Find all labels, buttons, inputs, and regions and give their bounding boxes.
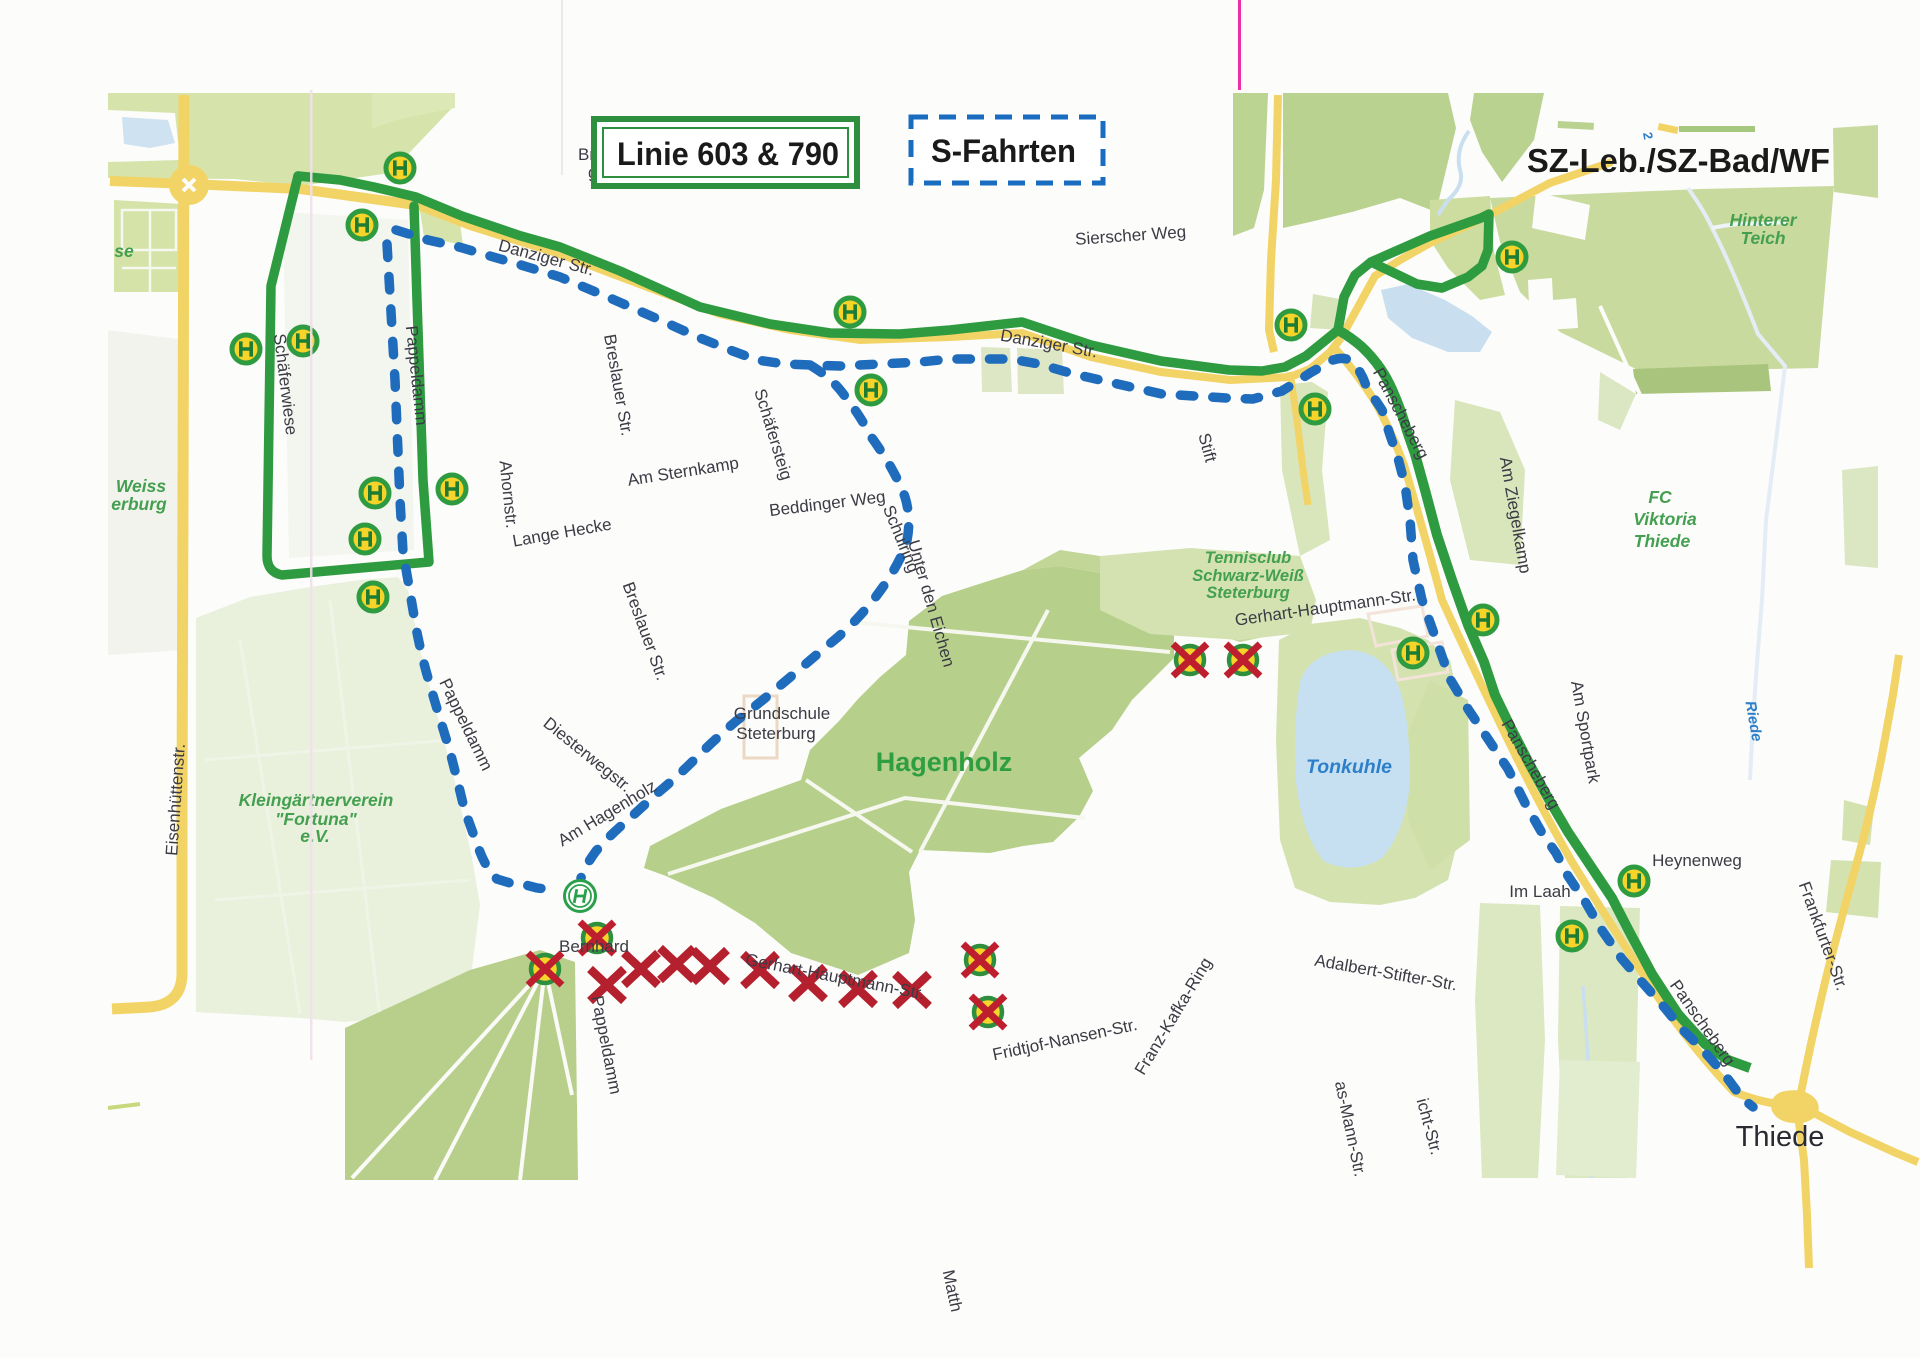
svg-text:FC: FC xyxy=(1648,487,1672,507)
svg-text:Grundschule: Grundschule xyxy=(734,704,830,723)
svg-text:Steterburg: Steterburg xyxy=(736,724,815,743)
svg-text:Im Laah: Im Laah xyxy=(1509,882,1570,901)
svg-text:Thiede: Thiede xyxy=(1634,531,1691,551)
svg-text:Linie 603 & 790: Linie 603 & 790 xyxy=(617,136,839,172)
svg-text:Bernhard: Bernhard xyxy=(559,937,629,956)
svg-text:erburg: erburg xyxy=(111,494,167,514)
svg-text:SZ-Leb./SZ-Bad/WF: SZ-Leb./SZ-Bad/WF xyxy=(1527,142,1830,179)
svg-text:Hagenholz: Hagenholz xyxy=(876,747,1013,777)
svg-text:Weiss: Weiss xyxy=(116,476,167,496)
svg-text:Teich: Teich xyxy=(1740,228,1785,248)
svg-text:Thiede: Thiede xyxy=(1736,1121,1825,1153)
svg-text:Steterburg: Steterburg xyxy=(1206,584,1289,602)
svg-text:S-Fahrten: S-Fahrten xyxy=(931,133,1076,169)
svg-text:Tonkuhle: Tonkuhle xyxy=(1306,756,1392,778)
svg-text:se: se xyxy=(114,241,134,261)
svg-text:Schwarz-Weiß: Schwarz-Weiß xyxy=(1192,567,1304,585)
svg-text:Tennisclub: Tennisclub xyxy=(1205,549,1291,567)
svg-text:Heynenweg: Heynenweg xyxy=(1652,851,1742,870)
svg-text:Kleingärtnerverein: Kleingärtnerverein xyxy=(239,790,394,810)
svg-text:Hinterer: Hinterer xyxy=(1729,210,1797,230)
svg-text:e.V.: e.V. xyxy=(300,826,330,846)
svg-text:Viktoria: Viktoria xyxy=(1633,509,1697,529)
